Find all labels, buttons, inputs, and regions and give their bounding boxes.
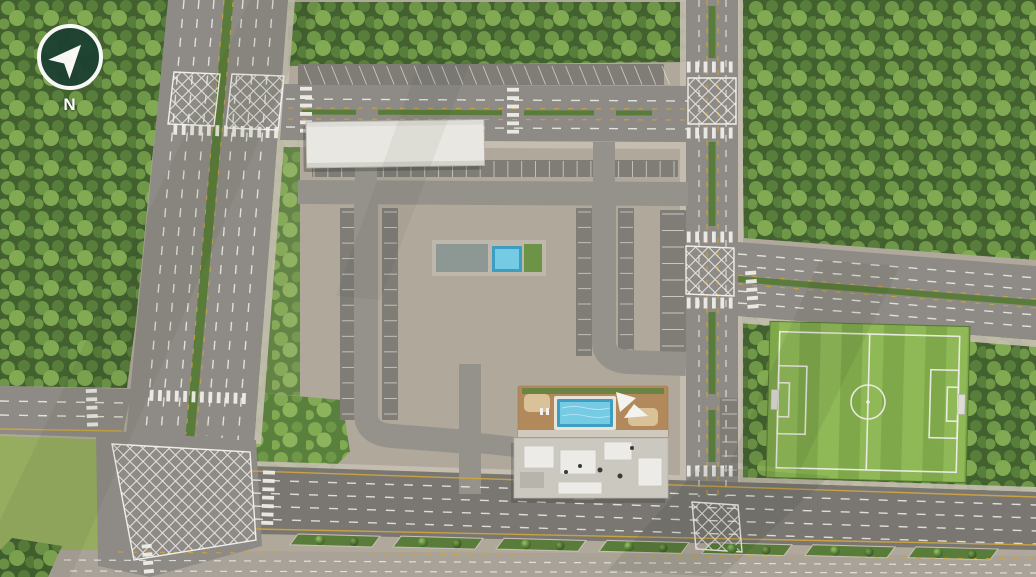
site-plan-render: N bbox=[0, 0, 1036, 577]
palm-tree bbox=[933, 548, 943, 558]
palm-tree bbox=[968, 550, 977, 559]
parking-lot bbox=[720, 398, 738, 476]
median-planter bbox=[805, 545, 895, 558]
parking-lot bbox=[660, 210, 686, 352]
median-planter bbox=[393, 536, 483, 549]
parking-lot bbox=[576, 208, 592, 356]
median-planter bbox=[290, 534, 380, 547]
masterplan-scene bbox=[0, 0, 1036, 577]
planter bbox=[524, 244, 542, 272]
palm-tree bbox=[350, 537, 359, 546]
parking-lot bbox=[298, 64, 664, 85]
clubhouse bbox=[511, 438, 668, 503]
palm-tree bbox=[315, 535, 325, 545]
palm-tree bbox=[865, 548, 874, 557]
compass-arrow-icon bbox=[47, 34, 93, 80]
palm-tree bbox=[453, 539, 462, 548]
forest-northeast bbox=[740, 0, 1036, 260]
palm-tree bbox=[762, 546, 771, 555]
palm-tree bbox=[556, 541, 565, 550]
parking-lot bbox=[340, 208, 356, 420]
compass-circle bbox=[37, 24, 103, 90]
compass-north-label: N bbox=[37, 95, 103, 115]
inner-courtyard-amenity bbox=[432, 240, 546, 276]
pool-amenity-block bbox=[511, 386, 668, 503]
hatch-box bbox=[686, 246, 734, 296]
parking-lot bbox=[618, 208, 634, 356]
palm-tree bbox=[521, 539, 531, 549]
sport-court bbox=[436, 244, 488, 272]
median-planter bbox=[496, 538, 586, 551]
palm-tree bbox=[830, 546, 840, 556]
hatch-box-junction bbox=[112, 444, 256, 560]
palm-tree bbox=[418, 537, 428, 547]
hatch-box bbox=[688, 78, 736, 124]
forest-north bbox=[288, 2, 688, 66]
median-planter bbox=[908, 547, 998, 560]
goal-east bbox=[958, 394, 966, 414]
